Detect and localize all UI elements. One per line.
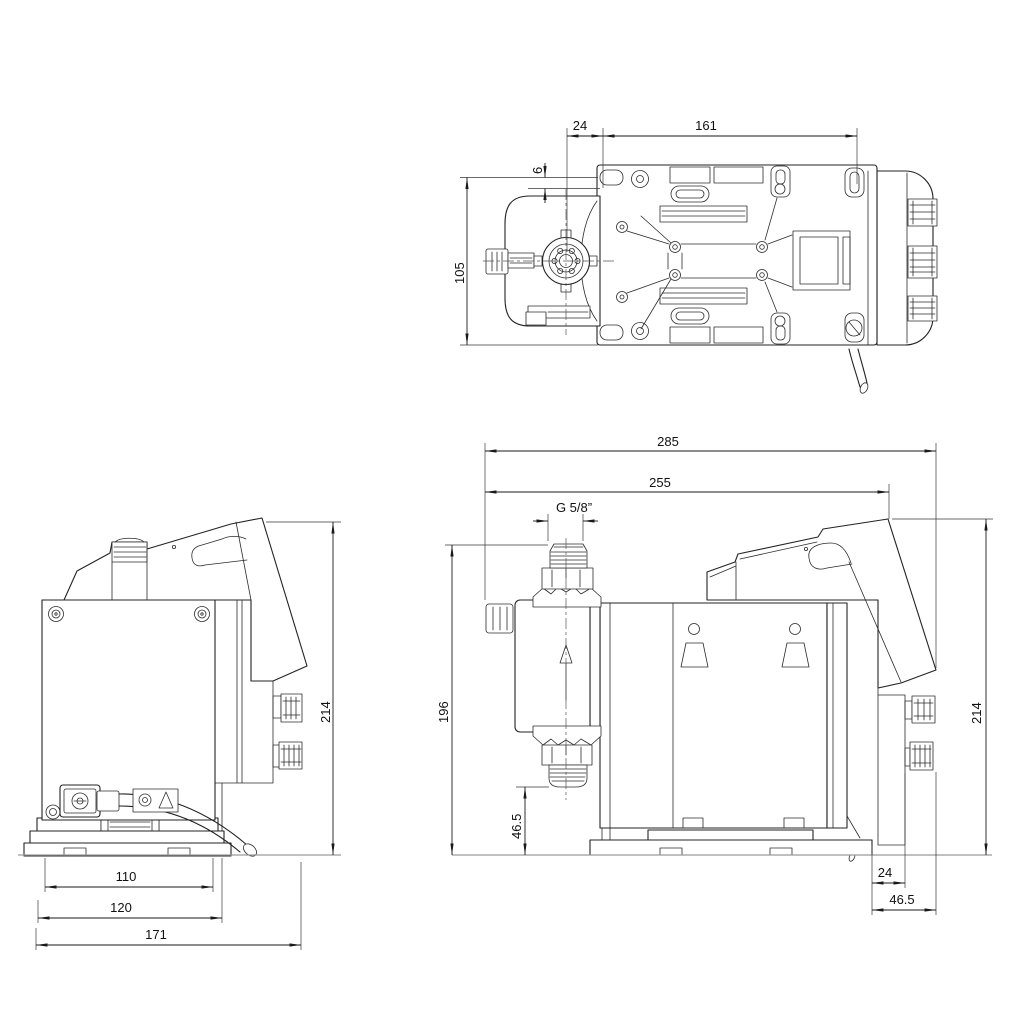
dim-label-overall-depth: 171	[145, 927, 167, 942]
knob-top-1	[908, 199, 937, 226]
knob-top-2	[908, 246, 937, 278]
knob-front-2	[279, 742, 302, 769]
dim-label-outlet-to-base: 46.5	[509, 814, 524, 839]
pump-body-side	[600, 603, 847, 843]
dim-label-overall-length: 285	[657, 434, 679, 449]
knob-front-1	[281, 694, 302, 722]
dim-label-thread-size: G 5/8”	[556, 500, 592, 515]
outlet-valve-thread	[533, 544, 601, 607]
dim-label-base-width: 120	[110, 900, 132, 915]
drawing-page: 24 161 6 105	[0, 0, 1024, 1024]
dim-label-mounting-length: 255	[649, 475, 671, 490]
knob-top-3	[908, 296, 937, 321]
dim-label-foot-width: 110	[116, 869, 137, 884]
dim-label-hole-spacing: 161	[695, 118, 717, 133]
pump-housing-top	[483, 189, 614, 335]
dim-label-hole-offset-x: 24	[573, 118, 587, 133]
head-knob-top	[486, 249, 508, 274]
dim-label-overall-height-front: 214	[318, 701, 333, 723]
dim-label-inlet-height: 196	[436, 701, 451, 723]
knob-side-2	[910, 742, 933, 770]
dim-label-back-depth: 46.5	[889, 892, 914, 907]
power-cable-top	[849, 349, 869, 394]
base-side	[590, 830, 872, 855]
dim-label-plate-width: 105	[452, 262, 467, 284]
dim-label-hole-offset-y: 6	[530, 167, 545, 174]
dim-label-back-offset: 24	[878, 865, 892, 880]
warning-label-plate	[133, 789, 178, 812]
mounting-plate	[597, 165, 877, 345]
back-panel-side	[847, 688, 935, 862]
dim-label-overall-height-side: 214	[969, 702, 984, 724]
front-view: 214 110 120 171	[18, 518, 341, 950]
side-view: 285 255 G 5/8” 196 46.5 214 24 46.5	[436, 434, 993, 915]
pump-dimensional-drawing: 24 161 6 105	[0, 0, 1024, 1024]
head-knob-side	[486, 604, 513, 633]
dosing-head-side	[486, 538, 601, 800]
inlet-valve	[533, 726, 601, 787]
knob-side-1	[912, 696, 935, 723]
top-view: 24 161 6 105	[452, 118, 937, 394]
